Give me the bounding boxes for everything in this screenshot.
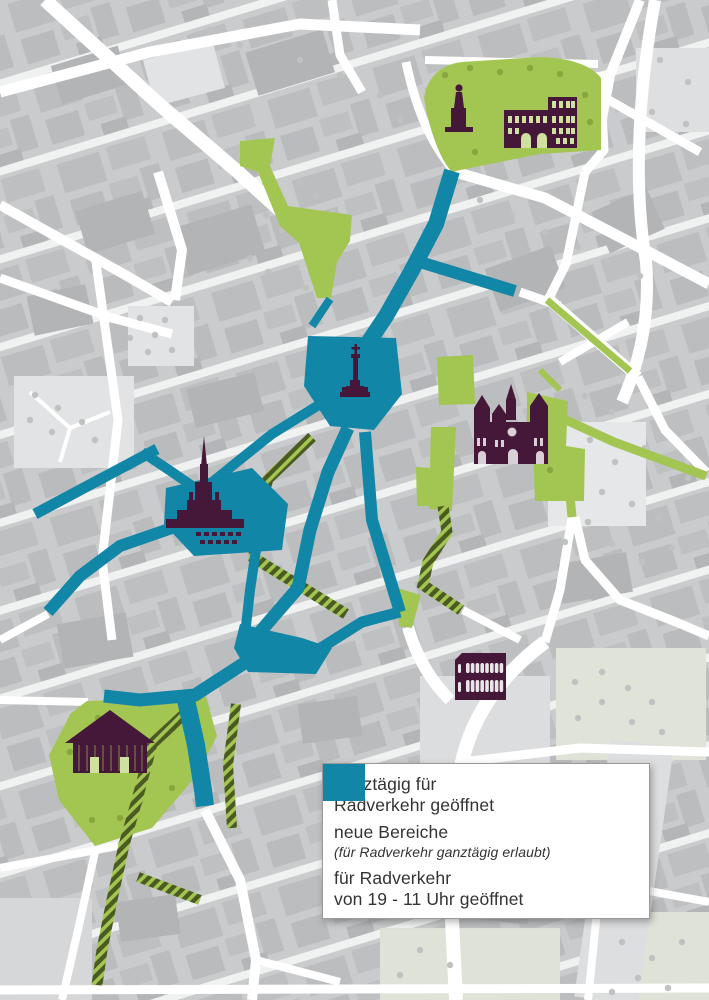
legend-item-new-areas: neue Bereiche (für Radverkehr ganztägig … [334, 822, 637, 862]
solid-teal-swatch [323, 764, 365, 801]
legend-item-evening: für Radverkehr von 19 - 11 Uhr geöffnet [334, 868, 637, 910]
legend-label: neue Bereiche [334, 822, 551, 843]
legend-item-allday: ganztägig für Radverkehr geöffnet [334, 774, 637, 816]
amphitheater-icon [455, 653, 506, 700]
legend-label: für Radverkehr [334, 868, 524, 889]
legend-label: (für Radverkehr ganztägig erlaubt) [334, 843, 551, 862]
legend: ganztägig für Radverkehr geöffnet neue B… [322, 763, 650, 919]
legend-label: von 19 - 11 Uhr geöffnet [334, 889, 524, 910]
city-map-page: ganztägig für Radverkehr geöffnet neue B… [0, 0, 709, 1000]
